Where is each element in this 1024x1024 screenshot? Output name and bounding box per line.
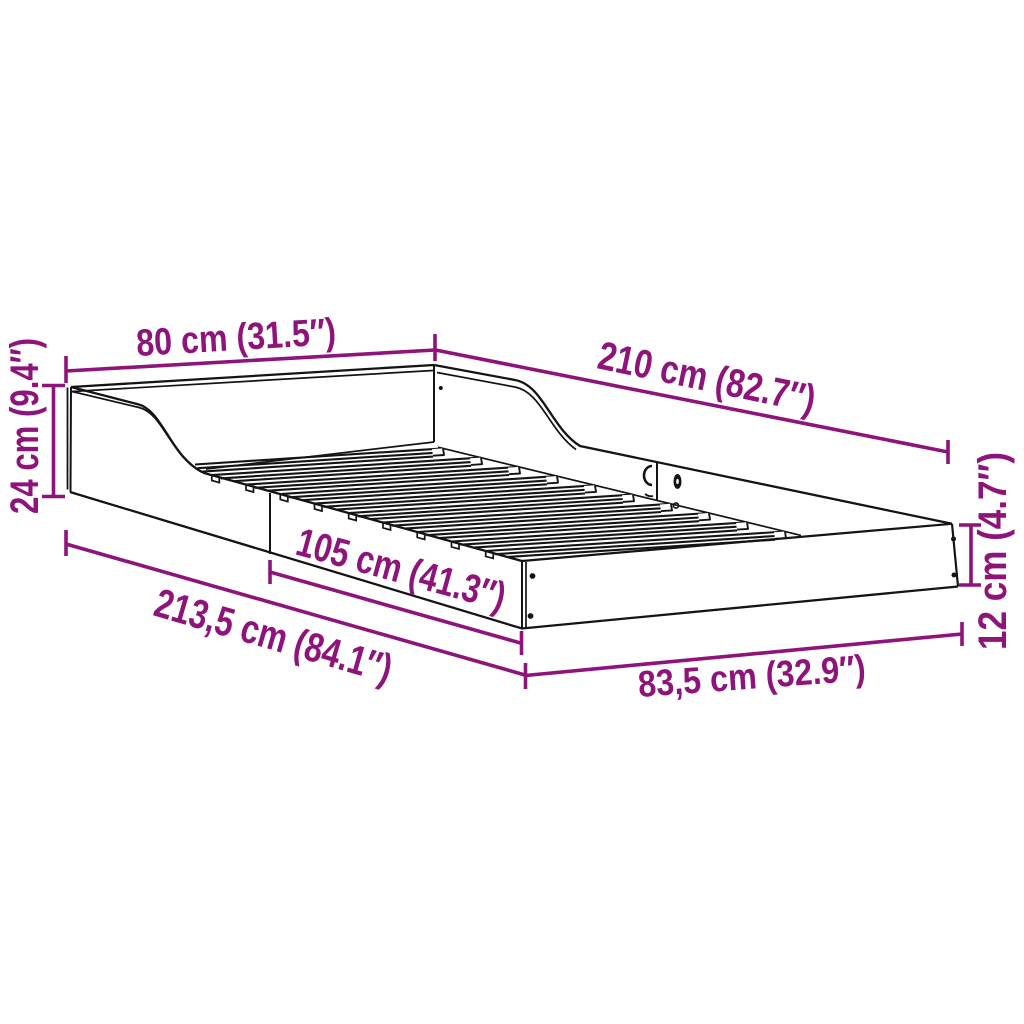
svg-text:12 cm (4.7″): 12 cm (4.7″): [971, 452, 1015, 650]
svg-text:24 cm (9.4″): 24 cm (9.4″): [3, 338, 47, 514]
